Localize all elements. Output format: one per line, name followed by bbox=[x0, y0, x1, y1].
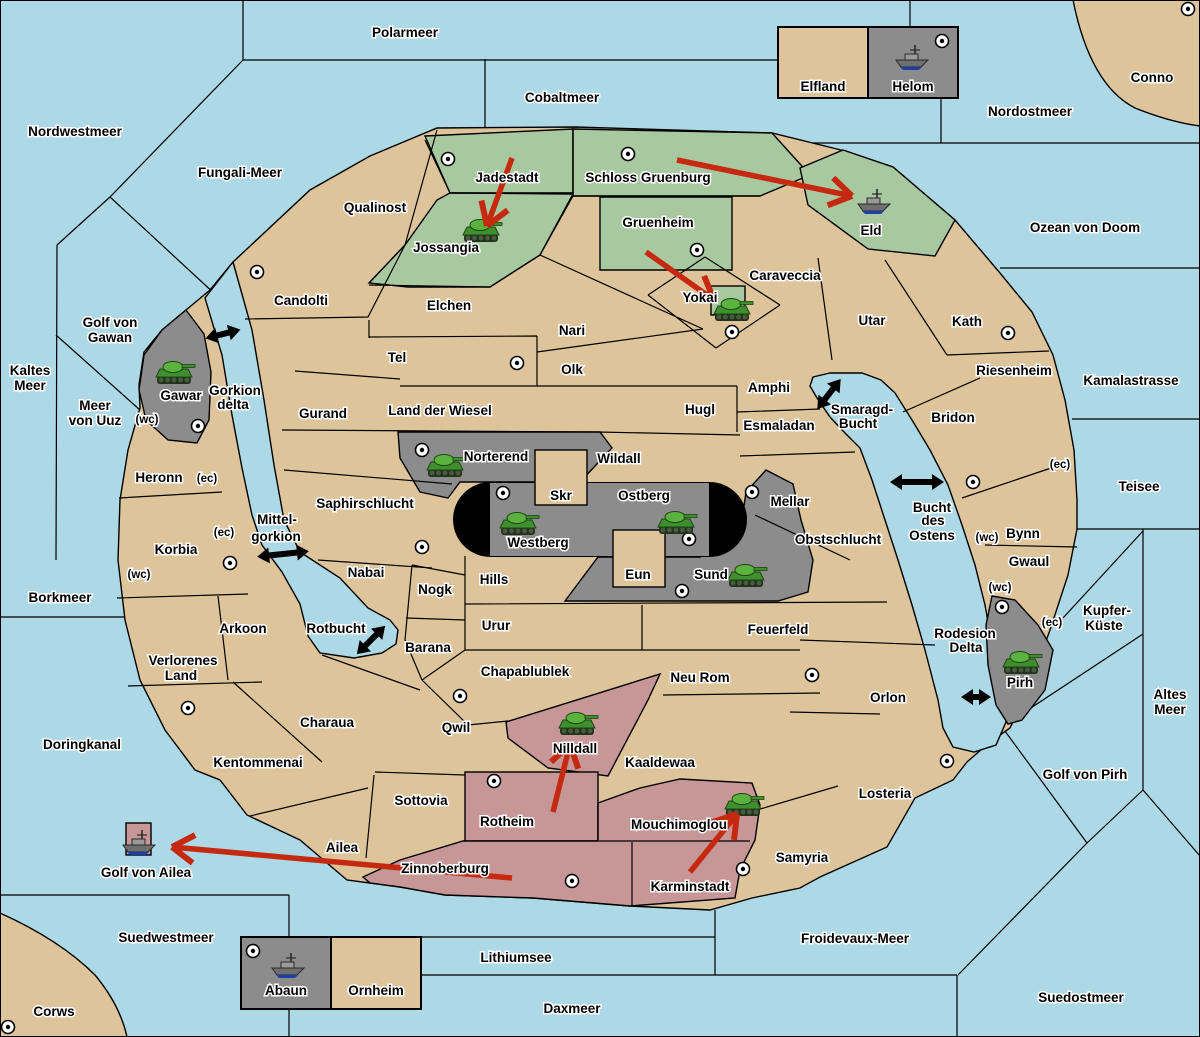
territory-label-land-der-wiesel: Land der Wiesel bbox=[388, 403, 491, 418]
sea-label-smaragd: Smaragd- bbox=[831, 402, 893, 417]
sea-label-bucht: Bucht bbox=[839, 416, 878, 431]
sea-label-ostens: Ostens bbox=[909, 528, 955, 543]
territory-label-karminstadt: Karminstadt bbox=[651, 879, 730, 894]
supply-center-dot bbox=[676, 585, 689, 598]
sea-label-suedostmeer: Suedostmeer bbox=[1038, 990, 1124, 1005]
territory-label-verlorenes: Verlorenes bbox=[148, 653, 217, 668]
sea-label-kamalastrasse: Kamalastrasse bbox=[1083, 373, 1179, 388]
territory-label-yokai: Yokai bbox=[682, 290, 717, 305]
territory-label-riesenheim: Riesenheim bbox=[976, 363, 1052, 378]
coast-marker-wc: (wc) bbox=[128, 569, 151, 581]
territory-label-korbia: Korbia bbox=[155, 542, 198, 557]
sea-label-golf-von-pirh: Golf von Pirh bbox=[1043, 767, 1128, 782]
coast-marker-wc: (wc) bbox=[136, 414, 159, 426]
sea-label-nordwestmeer: Nordwestmeer bbox=[28, 124, 123, 139]
supply-center-dot bbox=[1002, 327, 1015, 340]
sea-label-froidevaux-meer: Froidevaux-Meer bbox=[801, 931, 910, 946]
territory-label-sottovia: Sottovia bbox=[394, 793, 448, 808]
territory-label-helom: Helom bbox=[892, 79, 933, 94]
sea-label-daxmeer: Daxmeer bbox=[543, 1001, 601, 1016]
sea-label-golf-von-ailea: Golf von Ailea bbox=[101, 865, 192, 880]
territory-label-eld: Eld bbox=[860, 223, 881, 238]
territory-label-nilldall: Nilldall bbox=[553, 741, 597, 756]
supply-center-dot bbox=[746, 486, 759, 499]
territory-label-gurand: Gurand bbox=[299, 406, 347, 421]
territory-label-kentommenai: Kentommenai bbox=[213, 755, 302, 770]
sea-label-meer: Meer bbox=[79, 398, 111, 413]
territory-label-neu-rom: Neu Rom bbox=[670, 670, 729, 685]
supply-center-dot bbox=[967, 476, 980, 489]
sea-label-delta: delta bbox=[217, 397, 249, 412]
territory-label-sund: Sund bbox=[694, 567, 728, 582]
sea-label-von-uuz: von Uuz bbox=[69, 413, 122, 428]
sea-label-gorkion: Gorkion bbox=[209, 383, 261, 398]
territory-label-rotheim: Rotheim bbox=[480, 814, 534, 829]
supply-center-dot bbox=[511, 357, 524, 370]
territory-label-gwaul: Gwaul bbox=[1009, 554, 1050, 569]
territory-label-arkoon: Arkoon bbox=[219, 621, 266, 636]
sea-label-corws: Corws bbox=[33, 1004, 74, 1019]
territory-label-zinnoberburg: Zinnoberburg bbox=[401, 861, 489, 876]
supply-center-dot bbox=[247, 945, 260, 958]
territory-label-norterend: Norterend bbox=[464, 449, 529, 464]
coast-marker-ec: (ec) bbox=[1042, 617, 1063, 629]
territory-label-mellar: Mellar bbox=[770, 494, 810, 509]
coast-marker-ec: (ec) bbox=[197, 473, 218, 485]
supply-center-dot bbox=[497, 487, 510, 500]
supply-center-dot bbox=[806, 669, 819, 682]
sea-label-nordostmeer: Nordostmeer bbox=[988, 104, 1073, 119]
territory-label-bynn: Bynn bbox=[1006, 526, 1040, 541]
sea-label-polarmeer: Polarmeer bbox=[372, 25, 439, 40]
territory-label-hills: Hills bbox=[480, 572, 509, 587]
supply-center-dot bbox=[726, 326, 739, 339]
sea-label-fungali-meer: Fungali-Meer bbox=[198, 165, 283, 180]
coast-marker-ec: (ec) bbox=[214, 527, 235, 539]
territory-label-saphirschlucht: Saphirschlucht bbox=[316, 496, 414, 511]
territory-label-schloss-gruenburg: Schloss Gruenburg bbox=[585, 170, 710, 185]
territory-label-wildall: Wildall bbox=[597, 451, 640, 466]
game-map[interactable]: PolarmeerNordwestmeerFungali-MeerCobaltm… bbox=[0, 0, 1200, 1037]
sea-label-conno: Conno bbox=[1131, 70, 1174, 85]
sea-label-rotbucht: Rotbucht bbox=[306, 621, 366, 636]
supply-center-dot bbox=[737, 863, 750, 876]
sea-label-mittel: Mittel- bbox=[257, 512, 297, 527]
supply-center-dot bbox=[192, 420, 205, 433]
sea-label-borkmeer: Borkmeer bbox=[28, 590, 92, 605]
supply-center-dot bbox=[566, 875, 579, 888]
sea-label-des: des bbox=[921, 513, 944, 528]
supply-center-dot bbox=[1182, 3, 1195, 16]
supply-center-dot bbox=[251, 266, 264, 279]
supply-center-dot bbox=[936, 35, 949, 48]
sea-label-teisee: Teisee bbox=[1118, 479, 1160, 494]
territory-label-nari: Nari bbox=[559, 323, 585, 338]
territory-label-land: Land bbox=[165, 668, 197, 683]
sea-label-k-ste: Küste bbox=[1085, 618, 1123, 633]
sea-label-cobaltmeer: Cobaltmeer bbox=[525, 90, 600, 105]
territory-label-mouchimoglou: Mouchimoglou bbox=[631, 817, 727, 832]
territory-label-abaun: Abaun bbox=[265, 983, 307, 998]
territory-label-pirh: Pirh bbox=[1007, 675, 1033, 690]
territory-label-barana: Barana bbox=[405, 640, 451, 655]
sea-label-kupfer: Kupfer- bbox=[1083, 603, 1131, 618]
territory-label-nabai: Nabai bbox=[348, 565, 385, 580]
coast-marker-ec: (ec) bbox=[1050, 459, 1071, 471]
sea-label-delta: Delta bbox=[949, 640, 983, 655]
territory-label-ornheim: Ornheim bbox=[348, 983, 404, 998]
supply-center-dot bbox=[416, 541, 429, 554]
territory-label-esmaladan: Esmaladan bbox=[743, 418, 814, 433]
territory-label-gawar: Gawar bbox=[160, 388, 202, 403]
sea-label-gorkion: gorkion bbox=[251, 529, 301, 544]
territory-label-amphi: Amphi bbox=[748, 380, 790, 395]
territory-label-nogk: Nogk bbox=[418, 582, 452, 597]
territory-label-orlon: Orlon bbox=[870, 690, 906, 705]
supply-center-dot bbox=[454, 690, 467, 703]
territory-label-urur: Urur bbox=[482, 618, 511, 633]
supply-center-dot bbox=[683, 533, 696, 546]
territory-label-gruenheim: Gruenheim bbox=[622, 215, 693, 230]
inset-abaun-ornheim[interactable] bbox=[241, 937, 421, 1009]
territory-label-heronn: Heronn bbox=[135, 470, 182, 485]
territory-label-qwil: Qwil bbox=[442, 720, 471, 735]
map-canvas[interactable]: PolarmeerNordwestmeerFungali-MeerCobaltm… bbox=[0, 0, 1200, 1037]
sea-label-meer: Meer bbox=[14, 378, 46, 393]
territory-label-bridon: Bridon bbox=[931, 410, 975, 425]
sea-label-kaltes: Kaltes bbox=[10, 363, 51, 378]
sea-label-rodesion: Rodesion bbox=[934, 626, 996, 641]
sea-label-golf-von: Golf von bbox=[83, 315, 138, 330]
supply-center-dot bbox=[941, 755, 954, 768]
sea-label-altes: Altes bbox=[1153, 687, 1186, 702]
territory-label-skr: Skr bbox=[550, 488, 573, 503]
territory-label-ailea: Ailea bbox=[326, 840, 359, 855]
territory-label-losteria: Losteria bbox=[859, 786, 912, 801]
territory-label-chapablublek: Chapablublek bbox=[481, 664, 570, 679]
sea-label-lithiumsee: Lithiumsee bbox=[480, 950, 552, 965]
territory-label-feuerfeld: Feuerfeld bbox=[748, 622, 809, 637]
territory-label-jossangia: Jossangia bbox=[413, 240, 480, 255]
sea-label-gawan: Gawan bbox=[88, 330, 132, 345]
sea-label-suedwestmeer: Suedwestmeer bbox=[118, 930, 214, 945]
supply-center-dot bbox=[182, 702, 195, 715]
supply-center-dot bbox=[416, 444, 429, 457]
territory-label-charaua: Charaua bbox=[300, 715, 355, 730]
territory-label-olk: Olk bbox=[561, 362, 583, 377]
supply-center-dot bbox=[622, 148, 635, 161]
territory-label-samyria: Samyria bbox=[776, 850, 829, 865]
territory-label-eun: Eun bbox=[625, 567, 651, 582]
territory-label-candolti: Candolti bbox=[274, 293, 328, 308]
territory-label-obstschlucht: Obstschlucht bbox=[795, 532, 882, 547]
supply-center-dot bbox=[691, 244, 704, 257]
supply-center-dot bbox=[2, 1021, 15, 1034]
territory-label-qualinost: Qualinost bbox=[344, 200, 407, 215]
territory-label-ostberg: Ostberg bbox=[618, 488, 670, 503]
territory-label-kath: Kath bbox=[952, 314, 982, 329]
sea-label-ozean-von-doom: Ozean von Doom bbox=[1030, 220, 1140, 235]
sea-label-doringkanal: Doringkanal bbox=[43, 737, 121, 752]
territory-label-jadestadt: Jadestadt bbox=[475, 170, 539, 185]
supply-center-dot bbox=[488, 775, 501, 788]
territory-label-kaaldewaa: Kaaldewaa bbox=[625, 755, 695, 770]
territory-label-caraveccia: Caraveccia bbox=[749, 268, 821, 283]
territory-label-elfland: Elfland bbox=[800, 79, 845, 94]
territory-label-hugl: Hugl bbox=[685, 402, 715, 417]
coast-marker-wc: (wc) bbox=[989, 582, 1012, 594]
territory-label-utar: Utar bbox=[858, 313, 886, 328]
supply-center-dot bbox=[442, 153, 455, 166]
territory-label-westberg: Westberg bbox=[507, 535, 568, 550]
supply-center-dot bbox=[996, 601, 1009, 614]
supply-center-dot bbox=[224, 557, 237, 570]
territory-label-tel: Tel bbox=[388, 350, 407, 365]
coast-marker-wc: (wc) bbox=[976, 532, 999, 544]
sea-label-meer: Meer bbox=[1154, 702, 1186, 717]
territory-label-elchen: Elchen bbox=[427, 298, 471, 313]
